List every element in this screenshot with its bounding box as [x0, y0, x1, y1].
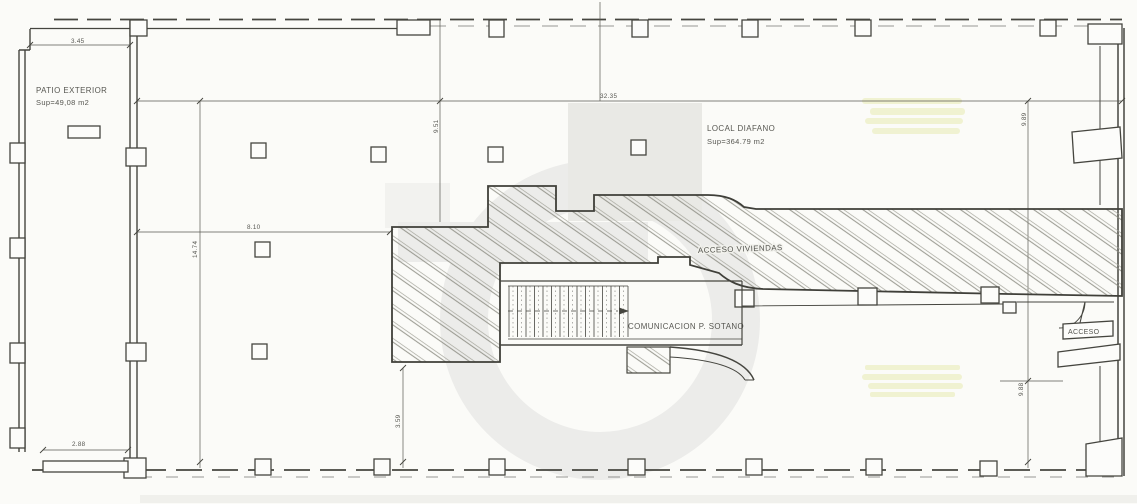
- patio-room-label: PATIO EXTERIOR: [36, 86, 107, 95]
- dim-local-width: 32.35: [600, 93, 617, 100]
- local-room-label: LOCAL DIAFANO: [707, 124, 775, 133]
- floorplan-scan: PATIO EXTERIOR Sup=49,08 m2 LOCAL DIAFAN…: [0, 0, 1137, 504]
- acceso-label: ACCESO: [1068, 329, 1100, 336]
- patio-bottom-wall: [43, 461, 128, 472]
- dim-right-upper: 9.89: [1021, 112, 1028, 126]
- comunicacion-sotano-label: COMUNICACION P. SOTANO: [628, 322, 744, 331]
- scan-edge-band: [140, 495, 1137, 503]
- dim-patio-top: 3.45: [71, 38, 85, 45]
- dim-right-lower: 9.88: [1018, 382, 1025, 396]
- dim-left-bay: 9.51: [433, 119, 440, 133]
- dim-patio-side: 14.74: [192, 241, 199, 258]
- stair-lower-flight: [627, 347, 670, 373]
- patio-area-label: Sup=49,08 m2: [36, 98, 89, 107]
- dim-patio-bottom: 2.88: [72, 441, 86, 448]
- local-area-label: Sup=364.79 m2: [707, 137, 765, 146]
- patio-vent: [68, 126, 100, 138]
- floorplan-drawing: PATIO EXTERIOR Sup=49,08 m2 LOCAL DIAFAN…: [0, 0, 1137, 504]
- dim-lower-bay: 3.59: [395, 414, 402, 428]
- dim-grid-width: 8.10: [247, 224, 261, 231]
